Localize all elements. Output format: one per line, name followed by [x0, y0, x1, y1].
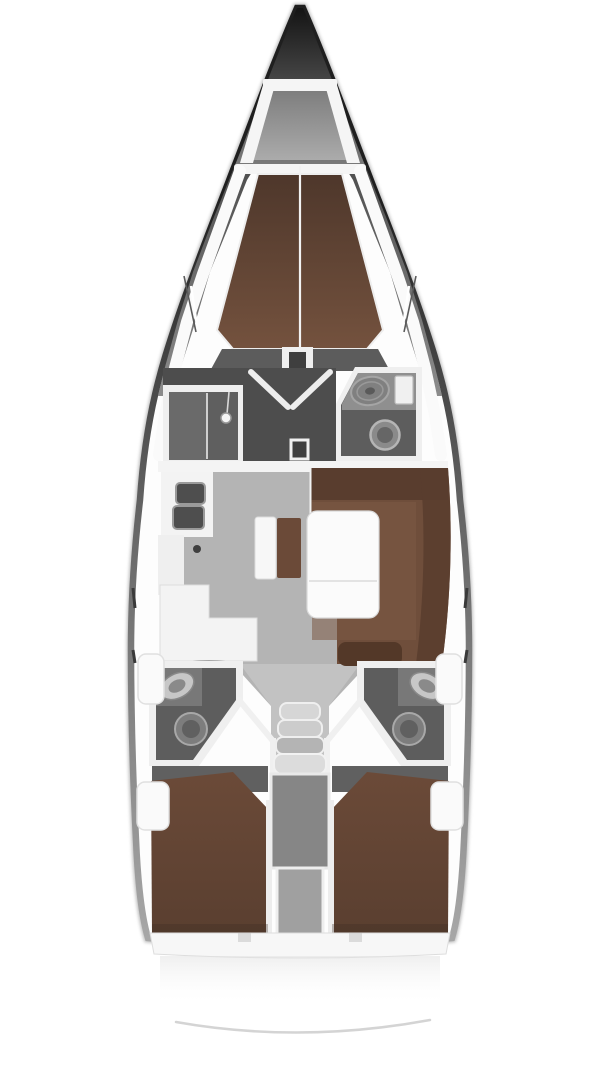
aft-head-port-toilet-bowl [182, 720, 200, 738]
swim-platform-line [176, 1020, 430, 1033]
hull-window-aft1-starboard [465, 588, 467, 608]
hull-window-aft1-port [133, 588, 135, 608]
shower-tray [169, 392, 206, 460]
berth-divider-starboard [328, 800, 334, 934]
galley-stove-knob [193, 545, 201, 553]
galley-sink-2 [173, 506, 204, 529]
hull-window-aft2-port [133, 650, 135, 663]
stern-shadow [160, 956, 440, 1006]
yacht-floor-plan [0, 0, 608, 1080]
forward-head-cabinet [395, 376, 413, 404]
saloon-table [307, 511, 379, 618]
vestibule-hatch [291, 440, 308, 459]
cockpit-locker-starboard-2 [431, 782, 463, 830]
engine-compartment [271, 774, 329, 868]
aft-head-starboard-toilet-bowl [400, 720, 418, 738]
side-bench-cushion [277, 518, 301, 578]
companionway-stairs [274, 703, 326, 774]
shower-head [221, 413, 231, 423]
cockpit-locker-port-1 [138, 654, 164, 704]
side-bench [255, 517, 276, 579]
transom [150, 933, 450, 958]
transom-step-starboard [349, 933, 362, 942]
berth-divider-port [266, 800, 272, 934]
stern-center-walkway [277, 868, 323, 937]
forward-head-toilet-bowl [377, 427, 393, 443]
galley-sink-1 [176, 483, 205, 504]
hull-window-aft2-starboard [465, 650, 467, 663]
floor-plan-svg [0, 0, 608, 1080]
cockpit-locker-port-2 [137, 782, 169, 830]
transom-step-port [238, 933, 251, 942]
cockpit-locker-starboard-1 [436, 654, 462, 704]
